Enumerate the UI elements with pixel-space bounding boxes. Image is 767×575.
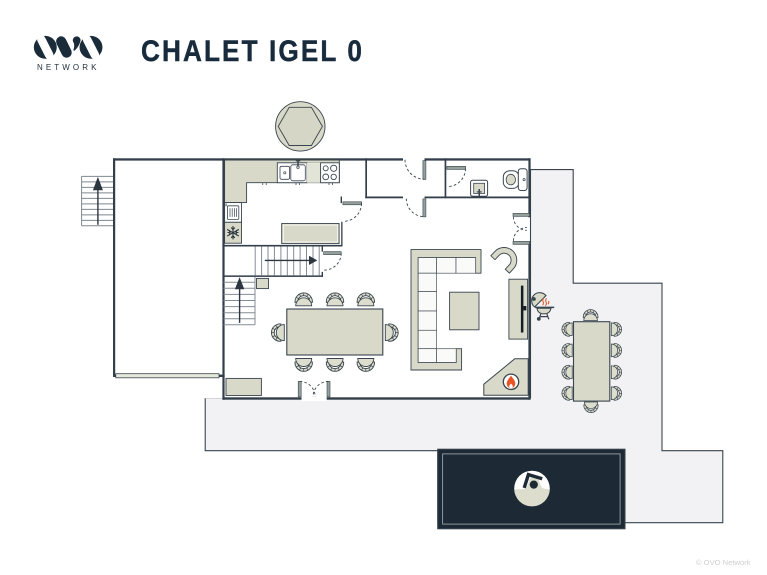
svg-text:NETWORK: NETWORK [37,63,100,72]
svg-text:© OVO Network: © OVO Network [696,558,751,567]
svg-text:CHALET IGEL 0: CHALET IGEL 0 [141,35,364,68]
